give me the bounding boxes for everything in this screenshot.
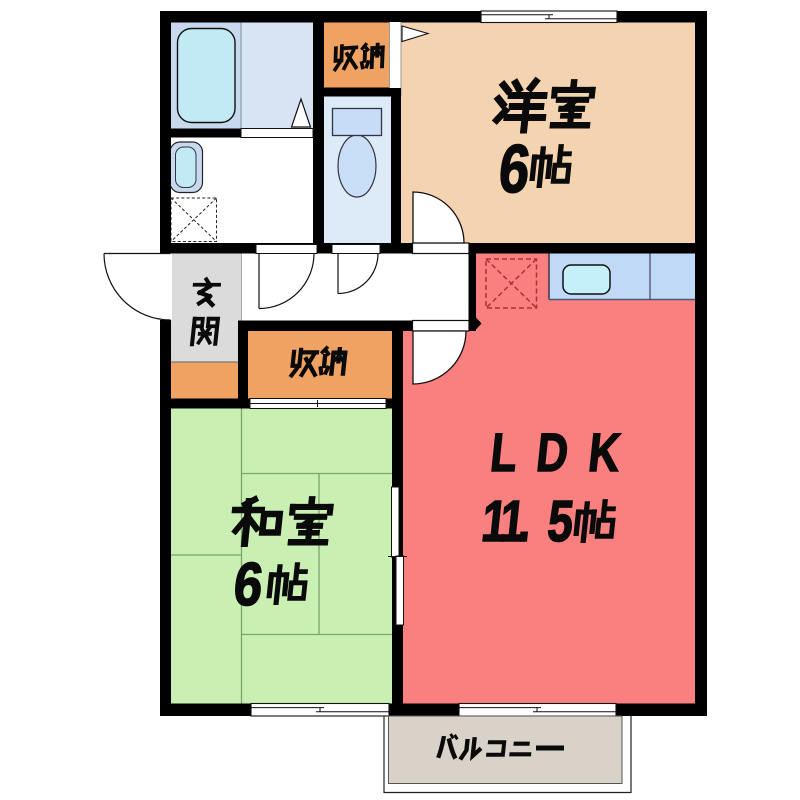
svg-text:D: D bbox=[534, 424, 571, 483]
svg-text:K: K bbox=[586, 424, 623, 483]
